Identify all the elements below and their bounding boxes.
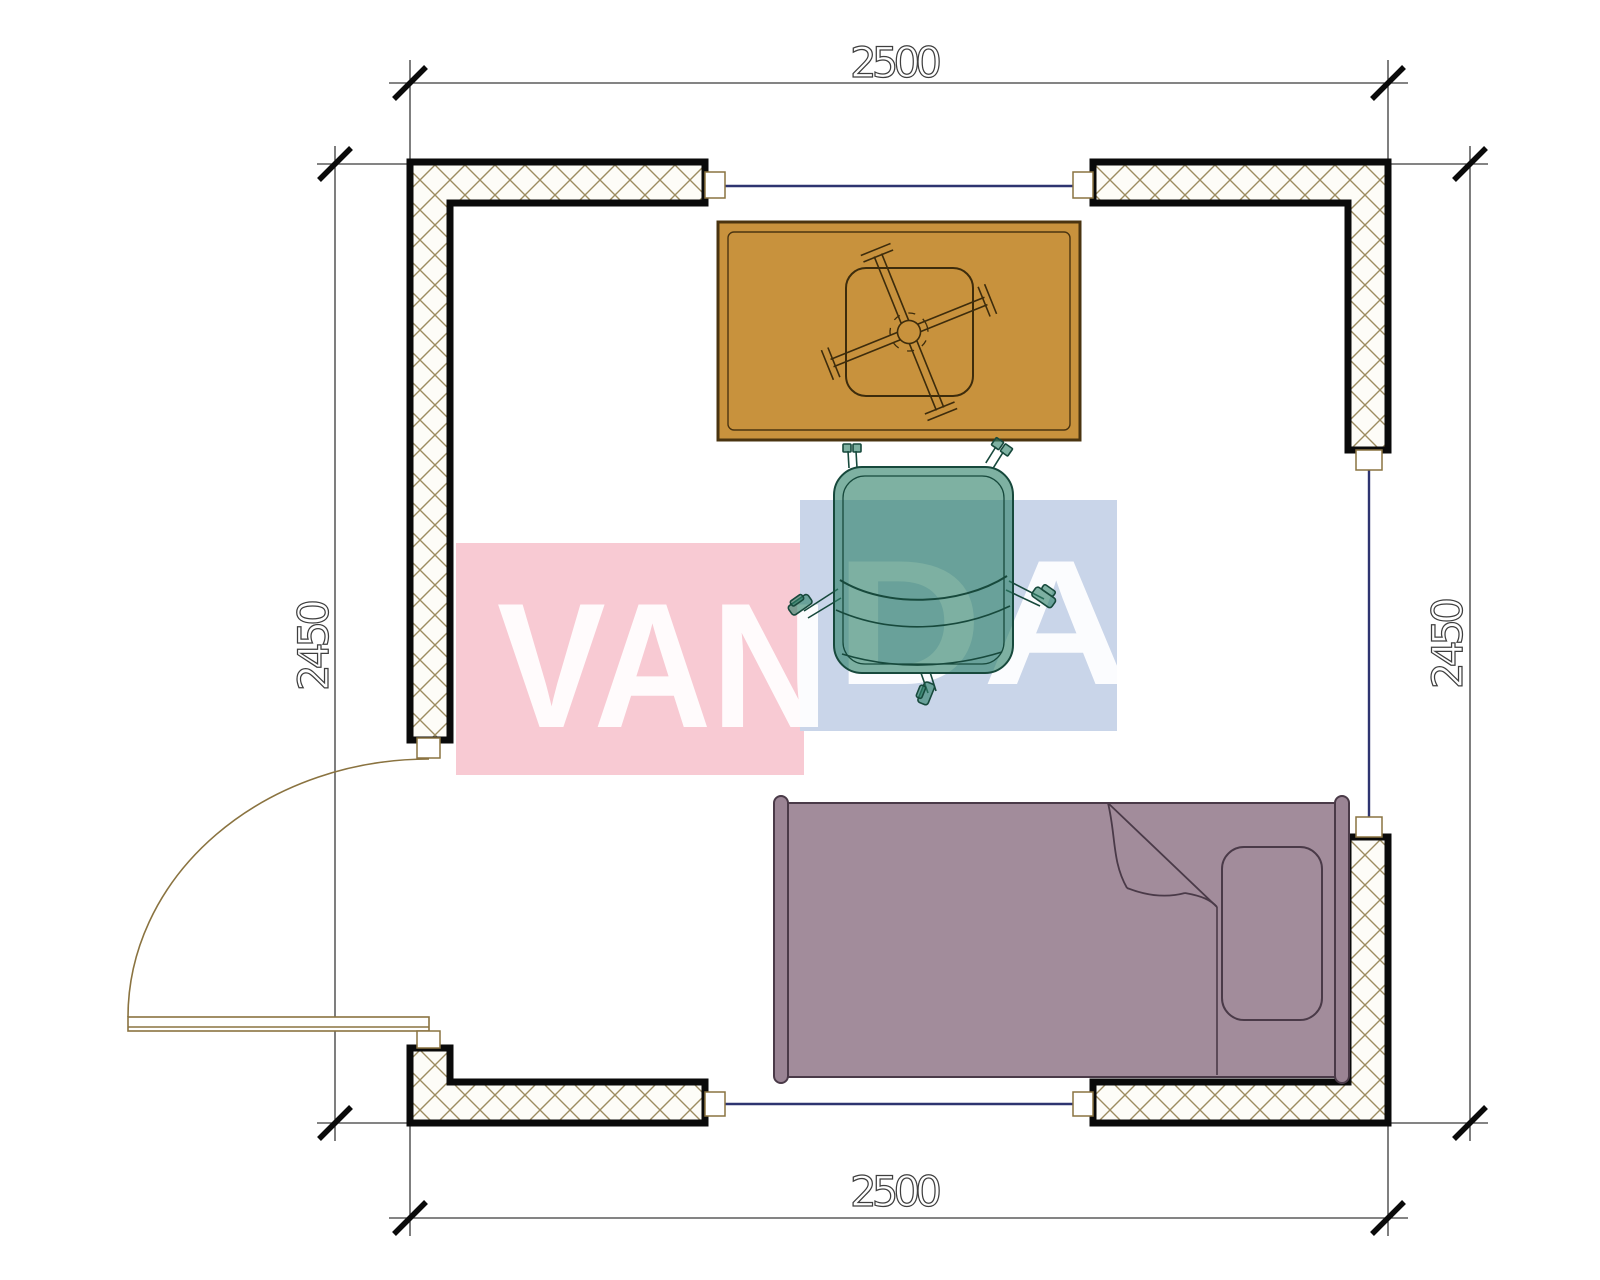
wall-top-right bbox=[1093, 162, 1388, 450]
bed-rail-left bbox=[774, 796, 788, 1083]
wall-bottom-left bbox=[410, 1048, 705, 1123]
bed-rail-right bbox=[1335, 796, 1349, 1083]
door bbox=[128, 759, 429, 1031]
dim-label-left: 2450 bbox=[289, 595, 338, 691]
dim-label-right: 2450 bbox=[1423, 593, 1472, 689]
table bbox=[718, 217, 1080, 448]
dim-label-bottom: 2500 bbox=[850, 1167, 946, 1216]
dim-label-top: 2500 bbox=[850, 38, 946, 87]
door-swing-arc bbox=[128, 759, 429, 1017]
single-bed bbox=[774, 796, 1349, 1083]
watermark: VAN DA bbox=[456, 500, 1130, 775]
floor-plan-drawing: 2500 2500 2450 2450 VAN DA bbox=[0, 0, 1600, 1280]
bed-pillow bbox=[1222, 847, 1322, 1020]
door-leaf bbox=[128, 1017, 429, 1031]
chair-seat bbox=[834, 467, 1013, 673]
chair-leg-top-left bbox=[843, 444, 861, 468]
floor-plan-canvas: 2500 2500 2450 2450 VAN DA bbox=[0, 0, 1600, 1280]
watermark-text-van: VAN bbox=[497, 566, 829, 765]
chair-leg-top-right bbox=[981, 437, 1013, 471]
